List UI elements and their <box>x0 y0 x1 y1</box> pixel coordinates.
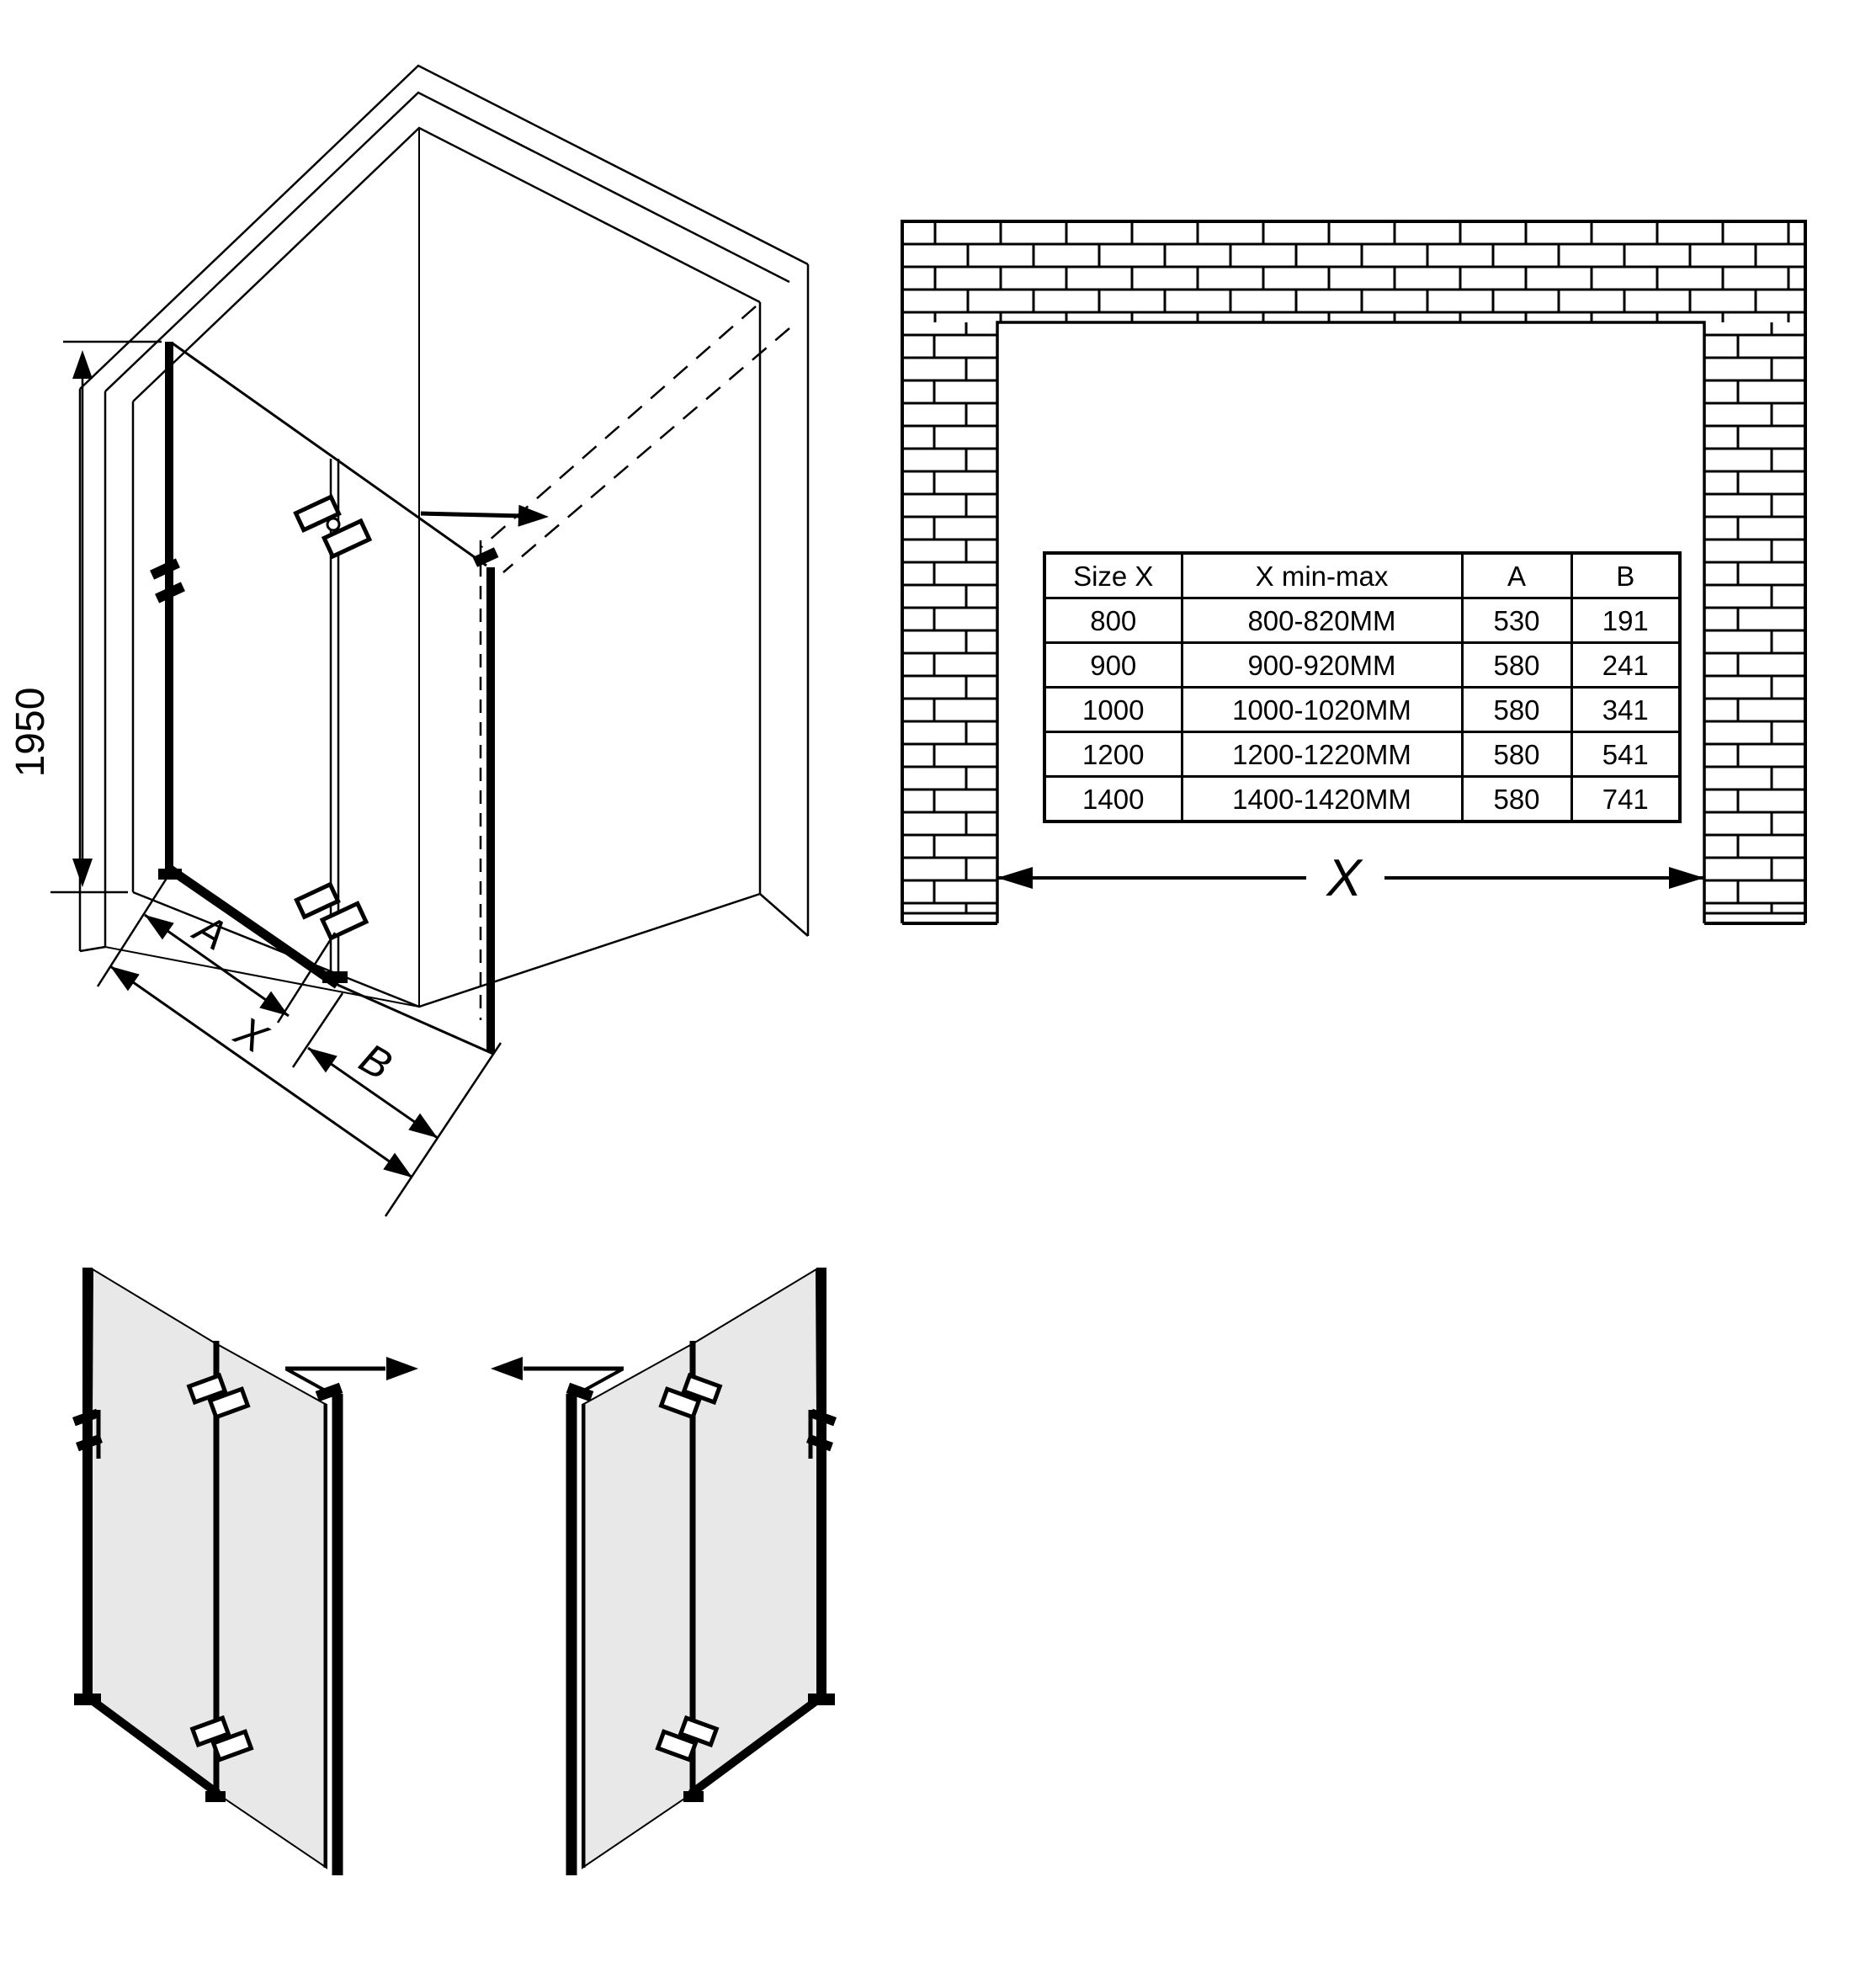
size-table-cell: 1000-1020MM <box>1182 688 1462 732</box>
size-table-header-size: Size X <box>1044 553 1182 598</box>
size-table-row: 800800-820MM530191 <box>1044 598 1680 643</box>
size-table-cell: 900 <box>1044 643 1182 688</box>
door-front-view-left <box>72 1268 418 1875</box>
size-table-row: 12001200-1220MM580541 <box>1044 732 1680 777</box>
size-table-cell: 1400-1420MM <box>1182 777 1462 822</box>
height-dimension-label: 1950 <box>8 688 53 778</box>
height-dimension: 1950 <box>8 342 162 892</box>
technical-drawing: 1950 A X B <box>0 0 1876 1962</box>
size-table-cell: 580 <box>1462 732 1571 777</box>
iso-hardware <box>150 497 498 938</box>
size-table-header-a: A <box>1462 553 1571 598</box>
extension-line <box>385 1043 501 1216</box>
opening-width-dimension: X <box>997 849 1704 907</box>
size-table-cell: 1200-1220MM <box>1182 732 1462 777</box>
center-post-foot <box>322 971 348 983</box>
size-table-cell: 541 <box>1571 732 1680 777</box>
size-table-cell: 580 <box>1462 688 1571 732</box>
size-table-header-row: Size X X min-max A B <box>1044 553 1680 598</box>
opening-width-label: X <box>1325 849 1363 907</box>
size-table-cell: 1400 <box>1044 777 1182 822</box>
isometric-view: 1950 A X B <box>8 66 808 1216</box>
size-table-header-b: B <box>1571 553 1680 598</box>
swing-arrow-icon <box>421 505 549 528</box>
size-table-row: 14001400-1420MM580741 <box>1044 777 1680 822</box>
size-table-cell: 800 <box>1044 598 1182 643</box>
size-table-row: 900900-920MM580241 <box>1044 643 1680 688</box>
door-front-view-right <box>491 1268 837 1875</box>
diagram-page: 1950 A X B <box>0 0 1876 1962</box>
dim-b-label: B <box>352 1034 400 1089</box>
size-table-cell: 741 <box>1571 777 1680 822</box>
size-table-cell: 900-920MM <box>1182 643 1462 688</box>
size-table-cell: 241 <box>1571 643 1680 688</box>
iso-hidden-edges <box>481 306 789 1020</box>
door-glass-top-edge <box>173 343 486 566</box>
size-table-cell: 580 <box>1462 643 1571 688</box>
size-table-cell: 341 <box>1571 688 1680 732</box>
size-table-cell: 191 <box>1571 598 1680 643</box>
size-table-cell: 580 <box>1462 777 1571 822</box>
size-table-cell: 1000 <box>1044 688 1182 732</box>
size-table-cell: 800-820MM <box>1182 598 1462 643</box>
size-table-cell: 530 <box>1462 598 1571 643</box>
width-dimensions: A X B <box>98 870 501 1216</box>
size-table-row: 10001000-1020MM580341 <box>1044 688 1680 732</box>
size-table-header-minmax: X min-max <box>1182 553 1462 598</box>
size-table-cell: 1200 <box>1044 732 1182 777</box>
fixed-panel-bottom-edge <box>337 985 493 1054</box>
size-table: Size X X min-max A B 800800-820MM5301919… <box>1043 551 1682 823</box>
dim-x-label: X <box>226 1007 276 1062</box>
